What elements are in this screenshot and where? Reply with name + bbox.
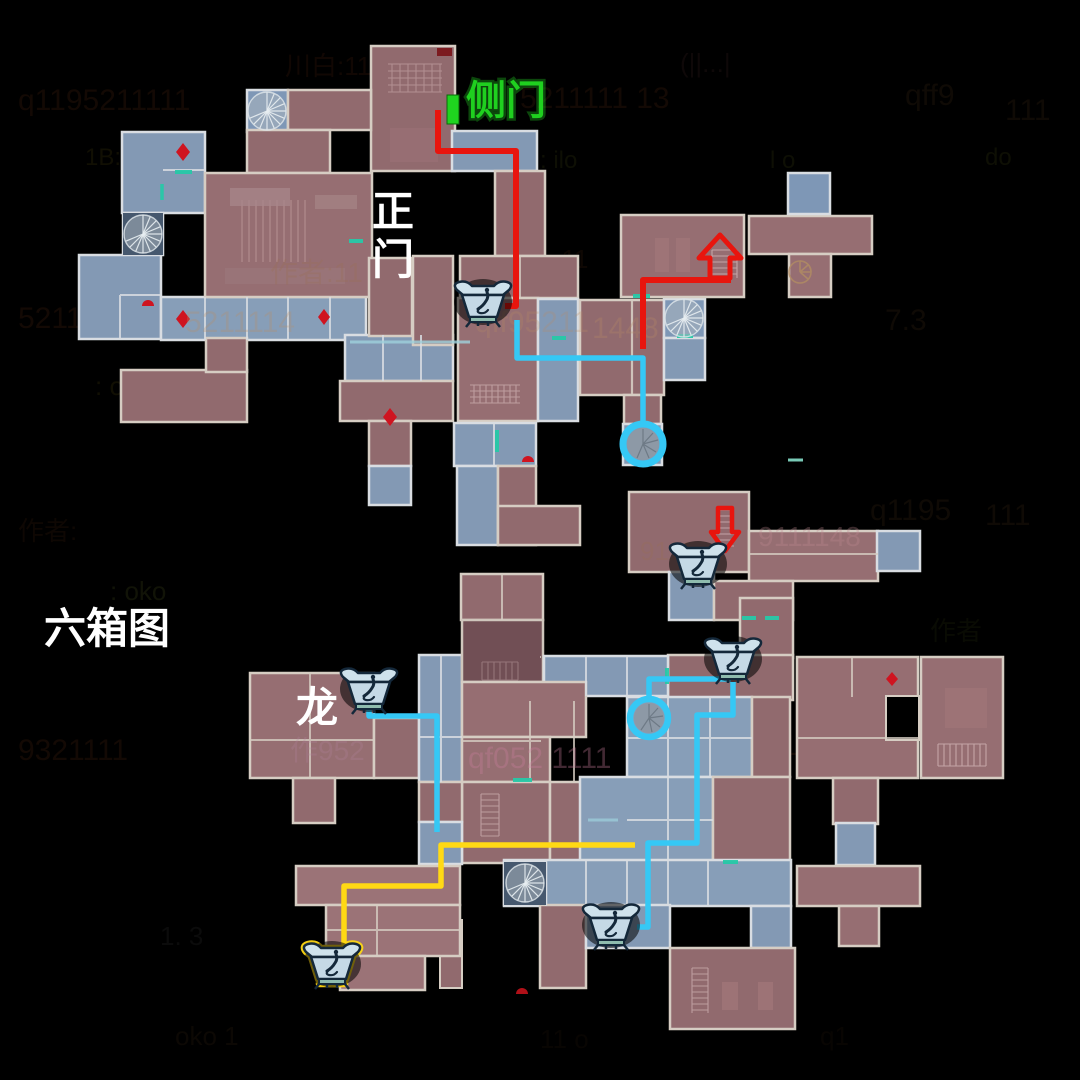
svg-text:侧门: 侧门	[466, 79, 546, 123]
svg-text:qff9: qff9	[905, 79, 955, 112]
svg-text:9321111: 9321111	[18, 734, 128, 767]
svg-text:作者: 作者	[930, 616, 982, 646]
svg-text:作者:: 作者:	[18, 516, 77, 546]
svg-text:111: 111	[1005, 94, 1051, 127]
svg-text:作者:11: 作者:11	[270, 257, 363, 288]
svg-text:q1195: q1195	[870, 494, 951, 527]
svg-text:六箱图: 六箱图	[44, 605, 170, 652]
svg-text:111: 111	[985, 499, 1031, 532]
svg-text:作952: 作952	[290, 735, 365, 766]
svg-text:正: 正	[372, 188, 414, 235]
svg-text:川白:11: 川白:11	[285, 51, 371, 81]
svg-text:(||...|: (||...|	[680, 48, 731, 78]
svg-text:l o: l o	[770, 147, 795, 174]
svg-text:门: 门	[372, 236, 414, 283]
svg-text:1448: 1448	[592, 312, 659, 345]
svg-text:q1195211111: q1195211111	[18, 84, 190, 117]
svg-text:: oko: : oko	[110, 576, 166, 606]
svg-text:5211114: 5211114	[185, 306, 295, 339]
svg-text:龙: 龙	[296, 684, 338, 731]
svg-text:9111148: 9111148	[758, 521, 861, 552]
svg-text:qf052 1111: qf052 1111	[468, 742, 611, 775]
svg-text:1. 3: 1. 3	[160, 921, 203, 951]
svg-text:11 o: 11 o	[540, 1024, 589, 1054]
svg-text:do: do	[985, 144, 1012, 171]
svg-text:7.3: 7.3	[885, 304, 927, 337]
svg-text:oko 1: oko 1	[175, 1021, 239, 1051]
svg-text:q1: q1	[820, 1021, 849, 1051]
